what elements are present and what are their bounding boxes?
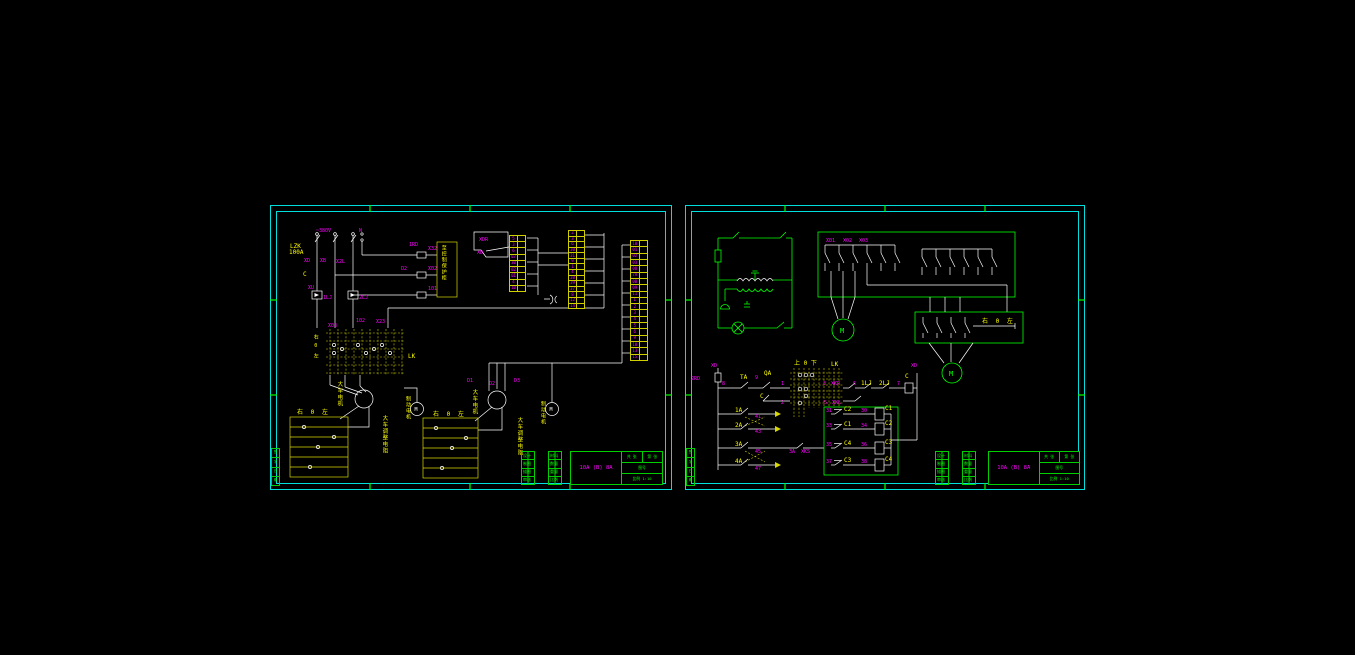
ctrl-n1: 1: [781, 381, 784, 387]
ctrl-r3a: 3A: [789, 449, 795, 455]
ctrl-fuse: 2RD: [691, 376, 700, 382]
label-d2: D2: [489, 381, 495, 387]
ctrl-sw2: 2A: [735, 422, 743, 429]
ctrl-n8: 8: [722, 381, 725, 387]
brake2-m: M: [550, 407, 553, 413]
margin-block: 签字日期: [686, 448, 695, 486]
ctrl-n5: 5: [824, 400, 827, 406]
relay-r2: 34: [861, 423, 867, 429]
tb-drawing-no: 图号: [1040, 463, 1080, 473]
brake1-name: 制动电机: [397, 396, 410, 422]
terminal-strip-3: 10010203087A0B09111234569101315 10010203…: [630, 240, 648, 361]
label-fuse1: 1RD: [409, 242, 418, 248]
terminal-strip-1: 53607300201410 53607300201410: [509, 235, 526, 292]
tb-scale: 比例 1:10: [622, 474, 662, 484]
ctrl-lk-header: 上 0 下: [794, 359, 817, 367]
coil1: C1: [885, 405, 893, 412]
cam-controller-lk: [326, 329, 404, 375]
label-mid-a: X03: [328, 323, 337, 329]
coil4: C4: [885, 456, 893, 463]
ctrl-xd-left: XD: [711, 363, 717, 369]
box-label-c: X03: [859, 238, 868, 244]
titleblock-strip2: 材料数量重量比例: [962, 451, 976, 485]
label-neutral: N: [359, 228, 362, 234]
terminal-strip-2: 236303191438393781214 236303191438393781…: [568, 230, 585, 309]
label-relay1: 1LJ: [323, 295, 332, 301]
sheet-schematic: X01 X02 X03 M M 右 0 左 XD 2RD 8 TA 9 QA 1…: [685, 205, 1085, 490]
titleblock-strip2: 材料数量重量比例: [548, 451, 562, 485]
sheet-wiring-diagram: ~380V N LZK 100A XD XB X2L C XU 1LJ 2LJ …: [270, 205, 672, 490]
ctrl-r3b: XKS: [801, 449, 810, 455]
ctrl-w4: 47: [755, 466, 761, 472]
titleblock-right: 共 张 第 张 图号 比例 1:10: [621, 452, 662, 484]
brake1-m: M: [415, 407, 418, 413]
ctrl-qa: QA: [764, 370, 772, 377]
label-d3: D3: [514, 378, 520, 384]
titleblock-main: 10A (B) 8A 共 张 第 张 图号 比例 1:10: [570, 451, 663, 485]
ctrl-n3: 3: [823, 381, 826, 387]
tb-sheets-total: 共 张: [1040, 452, 1059, 462]
label-breaker-rating: 100A: [289, 249, 304, 256]
coil2: C2: [885, 420, 893, 427]
contactor-panel: [818, 232, 1015, 312]
ctrl-sw4: 4A: [735, 458, 743, 465]
ctrl-xkr: XKR: [831, 381, 841, 387]
relay-r3: 36: [861, 442, 867, 448]
margin-block: 签字日期: [271, 448, 280, 486]
sheet2-drawing: X01 X02 X03 M M 右 0 左 XD 2RD 8 TA 9 QA 1…: [685, 205, 1085, 490]
label-junction-a: XDR: [479, 237, 489, 243]
label-wire2: X02: [428, 266, 437, 272]
ctrl-sw1: 1A: [735, 407, 743, 414]
relay-l3: 35: [826, 442, 832, 448]
terminal-strip-2-numbers: 236303191438393781214: [569, 231, 576, 308]
doc-number: 10A (B) 8A: [989, 452, 1039, 484]
tb-sheet-no: 第 张: [1059, 452, 1079, 462]
relay-l4: 37: [826, 459, 832, 465]
label-mid-c: X23: [376, 319, 385, 325]
tb-sheets-total: 共 张: [622, 452, 641, 462]
ctrl-n9: 9: [755, 375, 758, 381]
motor1-name: 大车电机: [336, 381, 342, 429]
titleblock-strip1: 设计制图描图审核: [521, 451, 535, 485]
relay-interlock-box: [824, 407, 917, 475]
rel-k4: C3: [844, 457, 852, 464]
label-wire3: 101: [428, 286, 437, 292]
res1-label: 大车调整电阻: [381, 415, 387, 479]
ctrl-ta: TA: [740, 374, 748, 381]
ctrl-lj2: 2LJ: [879, 380, 890, 387]
label-wire1: X32: [428, 246, 437, 252]
resistor-bank-2: [423, 418, 478, 478]
aux-header: 右 0 左: [982, 317, 1015, 325]
main-motor-m: M: [840, 327, 844, 335]
rel-k1: C2: [844, 406, 852, 413]
label-mid-b: 102: [356, 318, 365, 324]
terminal-strip-1-blank: 53607300201410: [517, 236, 525, 291]
titleblock-right: 共 张 第 张 图号 比例 1:10: [1039, 452, 1080, 484]
box-label-a: X01: [826, 238, 835, 244]
lk-positions-label: 右0左: [312, 334, 318, 376]
label-pole3: X2L: [336, 259, 345, 265]
aux-motor-m: M: [949, 370, 953, 378]
ctrl-n2: 2: [781, 400, 784, 406]
label-pole2: XB: [320, 258, 326, 264]
tb-scale: 比例 1:10: [1040, 474, 1080, 484]
motor2-name: 大车电机: [471, 389, 477, 437]
terminal-strip-3-numbers: 10010203087A0B09111234569101315: [631, 241, 639, 360]
box-label-b: X02: [843, 238, 852, 244]
label-junction-b: XD: [477, 250, 483, 256]
ctrl-w2: 43: [755, 429, 761, 435]
label-voltage: ~380V: [316, 228, 331, 234]
res1-header: 右 0 左: [297, 408, 330, 416]
outgoing-box-label: 至控制保护柜: [440, 245, 446, 295]
ctrl-xkl: XKL: [832, 400, 841, 406]
ctrl-n7: 7: [897, 381, 900, 387]
rel-k2: C1: [844, 421, 852, 428]
label-relay2: 2LJ: [359, 295, 368, 301]
relay-r1: 30: [861, 408, 867, 414]
label-c: C: [303, 271, 307, 278]
sheet2-frame: [685, 205, 1085, 490]
coil3: C3: [885, 439, 893, 446]
label-fuse2: D2: [401, 266, 407, 272]
terminal-strip-3-blank: 10010203087A0B09111234569101315: [639, 241, 648, 360]
terminal-strip-1-numbers: 53607300201410: [510, 236, 517, 291]
doc-number: 10A (B) 8A: [571, 452, 621, 484]
ctrl-lk: LK: [831, 361, 839, 368]
ctrl-c-coil: C: [905, 373, 909, 380]
label-xu: XU: [308, 285, 314, 291]
relay-l1: 31: [826, 408, 832, 414]
label-d1: D1: [467, 378, 473, 384]
ctrl-w3: 45: [755, 449, 761, 455]
ctrl-sw3: 3A: [735, 441, 743, 448]
tb-sheet-no: 第 张: [642, 452, 662, 462]
transformer-circuit: [715, 232, 792, 334]
ctrl-xd-right: XD: [911, 363, 917, 369]
relay-l2: 33: [826, 423, 832, 429]
ctrl-lj1: 1LJ: [861, 380, 872, 387]
brake2-name: 制动电机: [532, 401, 545, 427]
ctrl-n6: 6: [853, 381, 856, 387]
res2-header: 右 0 左: [433, 410, 466, 418]
relay-r4: 38: [861, 459, 867, 465]
terminal-strip-2-blank: 236303191438393781214: [576, 231, 584, 308]
ctrl-c-sw: C: [760, 393, 764, 400]
titleblock-strip1: 设计制图描图审核: [935, 451, 949, 485]
label-pole1: XD: [304, 258, 310, 264]
label-lk: LK: [408, 353, 416, 360]
tb-drawing-no: 图号: [622, 463, 662, 473]
main-switch: [312, 233, 363, 328]
rel-k3: C4: [844, 440, 852, 447]
cad-canvas: ~380V N LZK 100A XD XB X2L C XU 1LJ 2LJ …: [0, 0, 1355, 655]
sheet1-drawing: ~380V N LZK 100A XD XB X2L C XU 1LJ 2LJ …: [270, 205, 672, 490]
titleblock-main: 10A (B) 8A 共 张 第 张 图号 比例 1:10: [988, 451, 1080, 485]
ctrl-w1: 41: [755, 414, 761, 420]
